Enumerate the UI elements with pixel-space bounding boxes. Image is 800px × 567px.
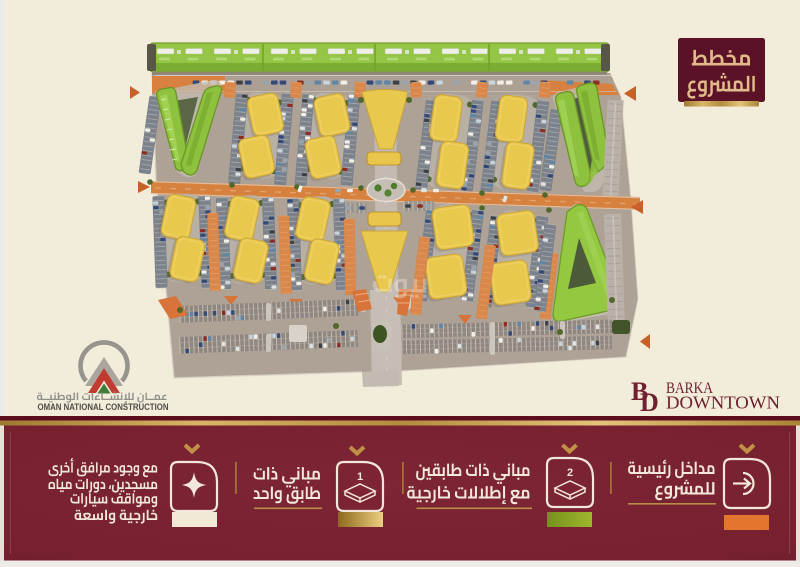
svg-text:D: D <box>640 388 659 417</box>
svg-text:DOWNTOWN: DOWNTOWN <box>666 393 780 413</box>
svg-text:OMAN NATIONAL CONSTRUCTION: OMAN NATIONAL CONSTRUCTION <box>38 402 169 413</box>
svg-text:2: 2 <box>567 467 573 479</box>
svg-text:1: 1 <box>357 471 363 483</box>
